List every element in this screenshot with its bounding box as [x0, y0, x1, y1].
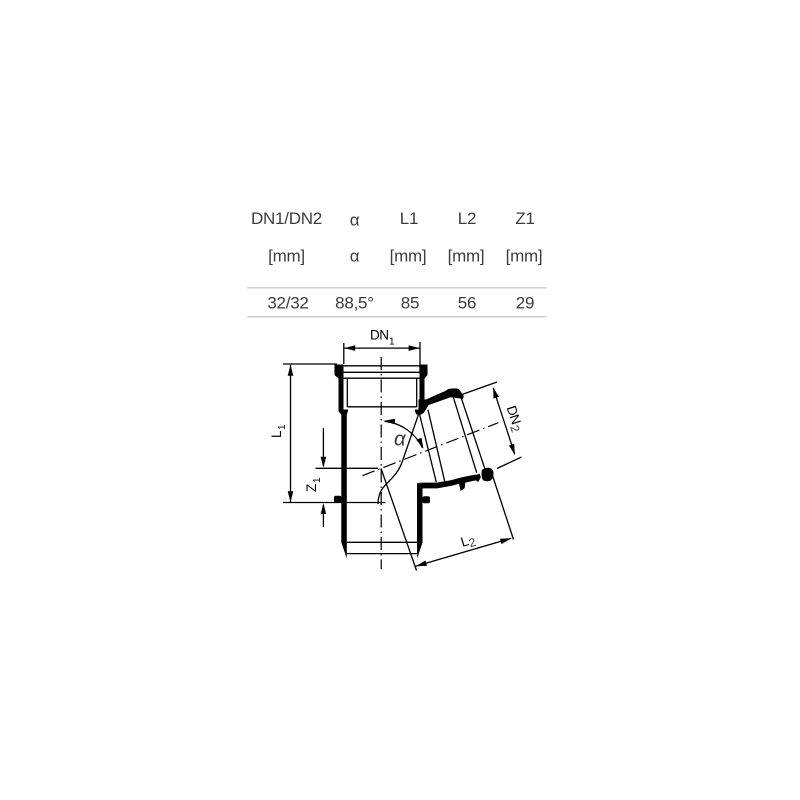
svg-text:α: α [350, 211, 360, 230]
svg-text:1: 1 [389, 337, 395, 348]
svg-text:L: L [269, 430, 284, 438]
svg-text:DN: DN [370, 328, 389, 343]
svg-text:DN1/DN2: DN1/DN2 [251, 209, 322, 228]
svg-text:56: 56 [458, 294, 476, 313]
svg-text:1: 1 [312, 477, 323, 483]
svg-text:L1: L1 [400, 209, 418, 228]
svg-text:[mm]: [mm] [506, 247, 543, 266]
svg-text:1: 1 [277, 424, 288, 430]
svg-text:α: α [394, 428, 407, 451]
svg-text:[mm]: [mm] [390, 247, 427, 266]
svg-text:L2: L2 [458, 209, 476, 228]
svg-text:Z: Z [304, 484, 319, 492]
svg-text:32/32: 32/32 [267, 294, 308, 313]
svg-text:85: 85 [401, 294, 419, 313]
svg-text:α: α [350, 247, 360, 266]
svg-text:[mm]: [mm] [268, 247, 305, 266]
svg-text:29: 29 [516, 294, 534, 313]
svg-text:Z1: Z1 [515, 209, 534, 228]
svg-text:88,5°: 88,5° [335, 294, 374, 313]
svg-text:[mm]: [mm] [448, 247, 485, 266]
